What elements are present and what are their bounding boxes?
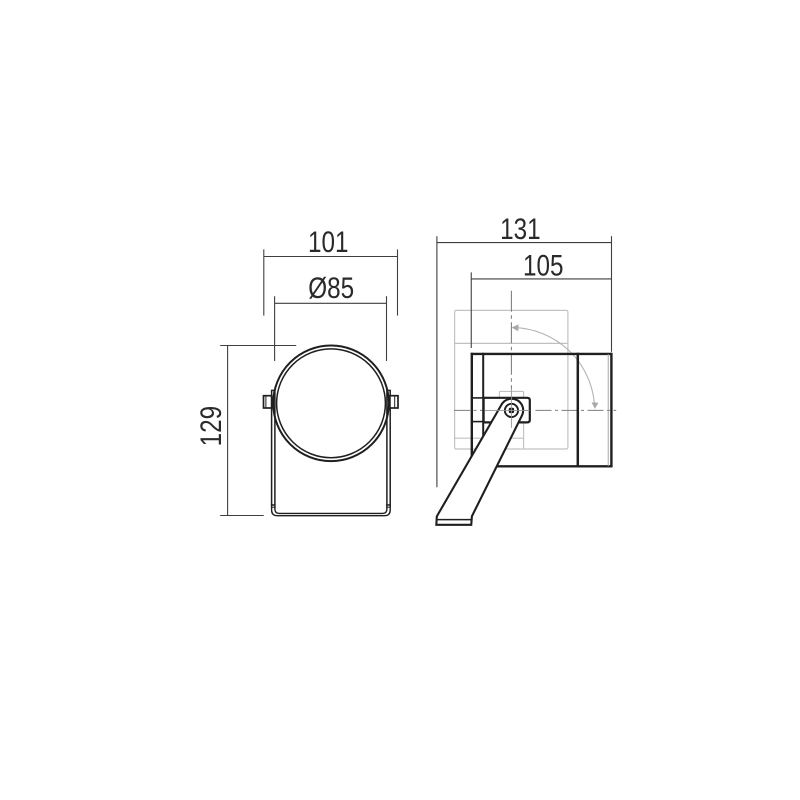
svg-text:101: 101 [308, 226, 348, 259]
svg-text:Ø85: Ø85 [308, 272, 354, 305]
svg-text:105: 105 [523, 249, 563, 282]
svg-text:129: 129 [195, 406, 228, 446]
svg-text:131: 131 [500, 213, 540, 246]
